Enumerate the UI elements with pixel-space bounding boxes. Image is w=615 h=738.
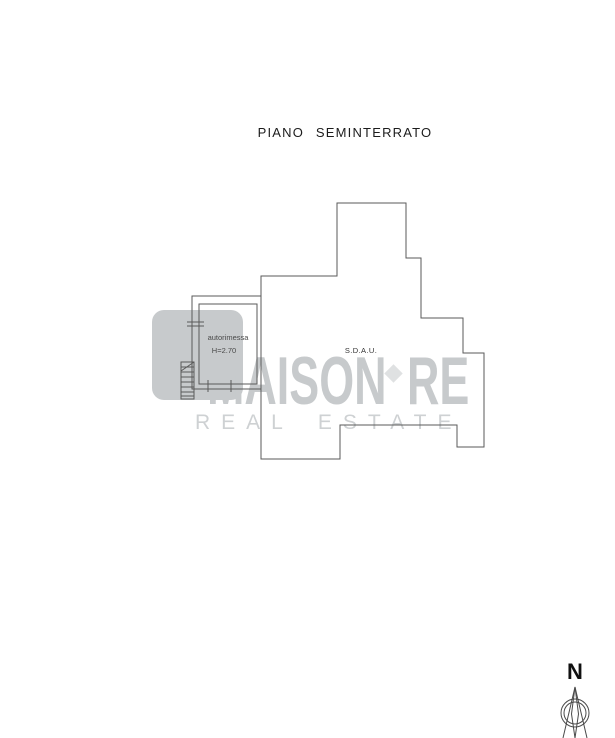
room-label-garage-height: H=2.70 [199, 346, 249, 355]
garage-inner-wall [199, 304, 257, 384]
garage-left-wall-door-ticks [187, 322, 204, 326]
compass-rose-icon [540, 678, 610, 738]
room-label-garage: autorimessa [203, 333, 253, 342]
floorplan-page: { "title": "PIANO SEMINTERRATO", "plan":… [0, 0, 615, 738]
floor-plan-drawing [0, 0, 615, 738]
plan-outline [261, 203, 484, 459]
garage-outer-wall [192, 296, 261, 389]
garage-bottom-wall-ticks [208, 380, 231, 392]
room-label-sdau: S.D.A.U. [341, 346, 381, 355]
